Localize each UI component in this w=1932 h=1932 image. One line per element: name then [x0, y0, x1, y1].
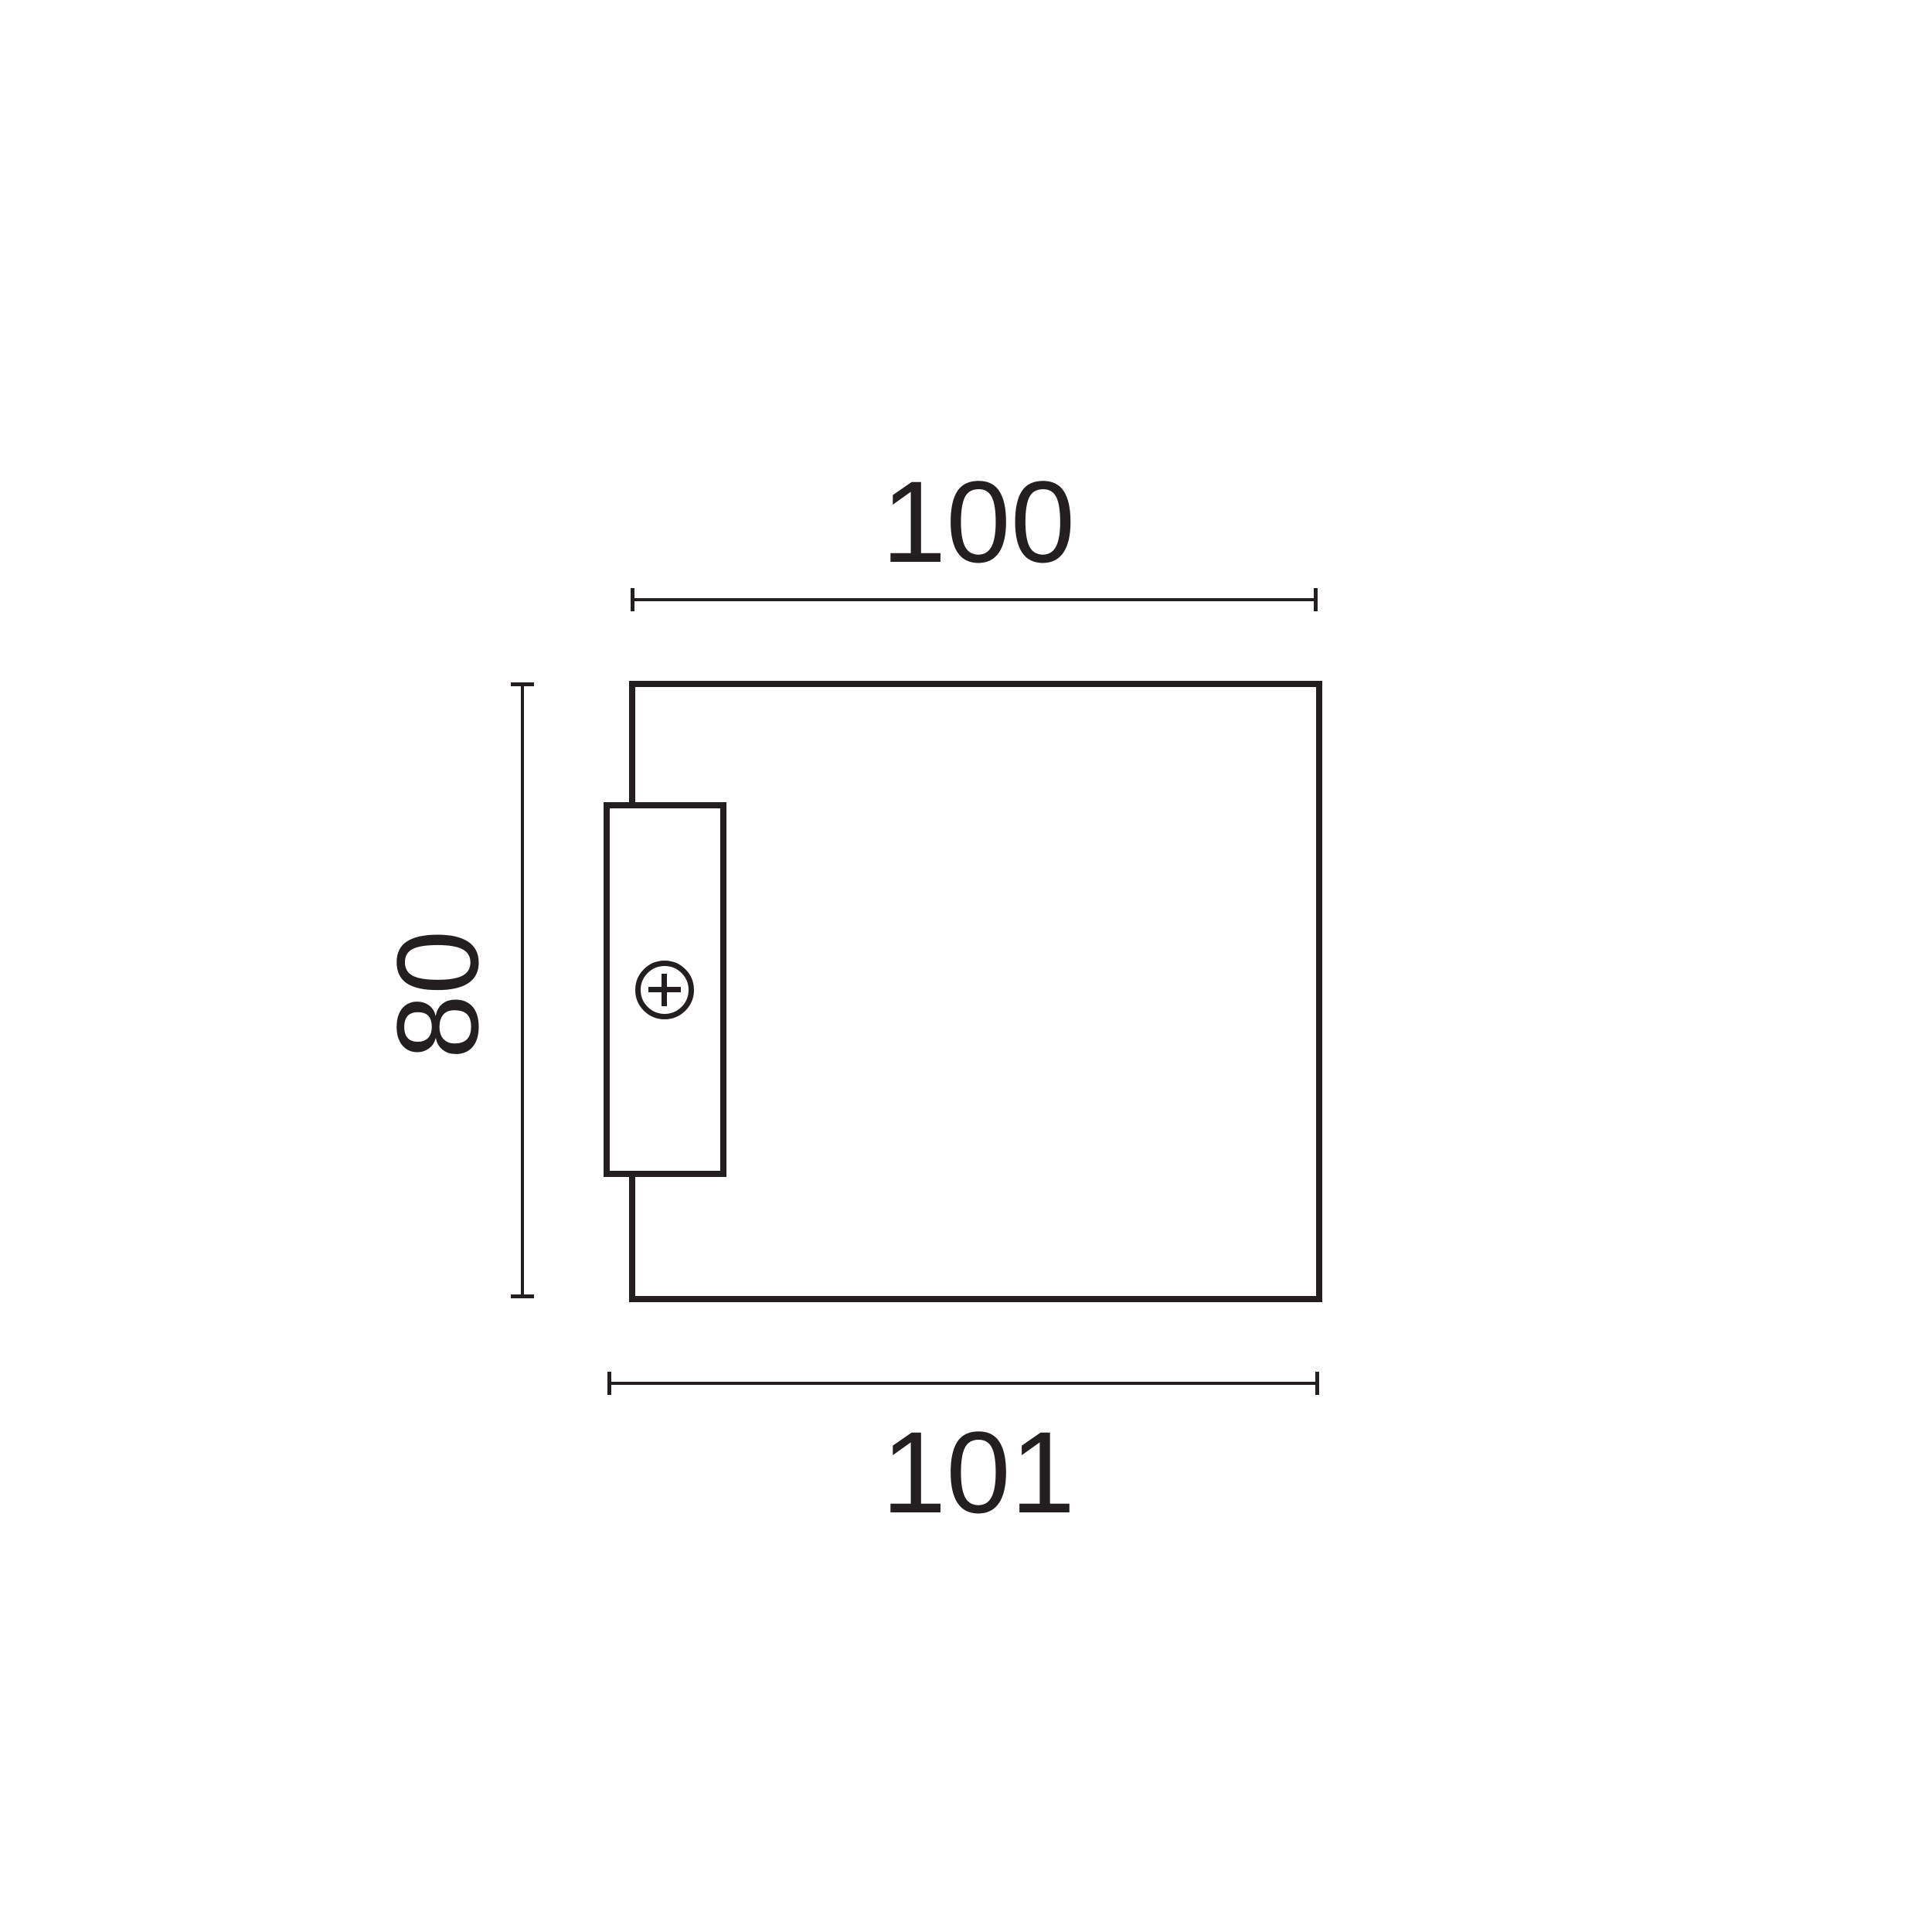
dimension-line-bottom — [609, 1382, 1317, 1385]
dimension-tick — [631, 588, 634, 611]
dimension-tick — [1314, 588, 1318, 611]
dimension-line-left — [521, 684, 524, 1297]
dimension-label-top: 100 — [824, 464, 1133, 580]
dimension-tick — [511, 682, 534, 686]
fixture-body-outline — [629, 681, 1322, 1302]
dimension-label-left: 80 — [379, 879, 495, 1111]
dimension-tick — [511, 1294, 534, 1298]
dimension-line-top — [633, 598, 1315, 601]
dimension-label-bottom: 101 — [824, 1414, 1133, 1530]
dimension-tick — [1315, 1372, 1319, 1395]
dimension-drawing: 100 80 101 — [0, 0, 1932, 1932]
dimension-tick — [607, 1372, 611, 1395]
screw-cross-vertical — [662, 974, 667, 1006]
